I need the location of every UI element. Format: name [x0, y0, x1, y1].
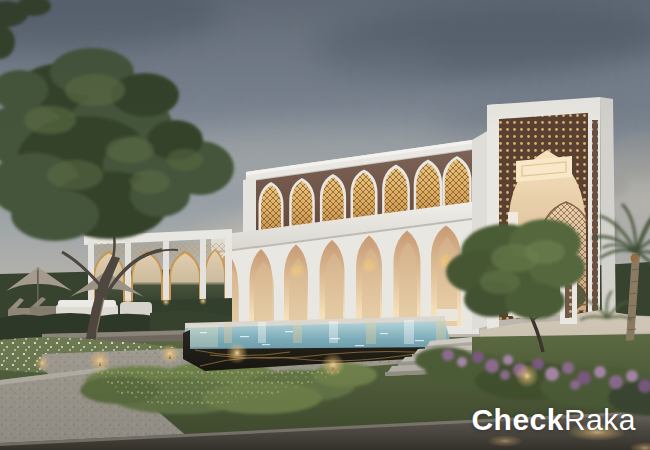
column-lattice-inlay: [592, 120, 598, 320]
path-light: [160, 344, 180, 364]
path-light: [34, 355, 50, 371]
watermark-text-bold: Check: [471, 403, 564, 436]
architectural-rendering: CheckRaka: [0, 0, 650, 450]
scene: [0, 0, 650, 450]
colonnade-arch: [394, 231, 421, 327]
colonnade-arch: [320, 240, 345, 328]
path-light: [89, 350, 111, 372]
path-light: [321, 353, 345, 377]
date-cluster: [631, 255, 638, 262]
path-light: [226, 342, 248, 364]
corner-pilaster: [243, 178, 256, 238]
tree-canopy: [0, 0, 234, 241]
colonnade-arch: [284, 245, 308, 329]
colonnade-arch: [356, 236, 382, 328]
path-light: [515, 364, 539, 388]
watermark-logo: CheckRaka: [471, 405, 636, 435]
watermark-text-light: Raka: [564, 403, 636, 436]
